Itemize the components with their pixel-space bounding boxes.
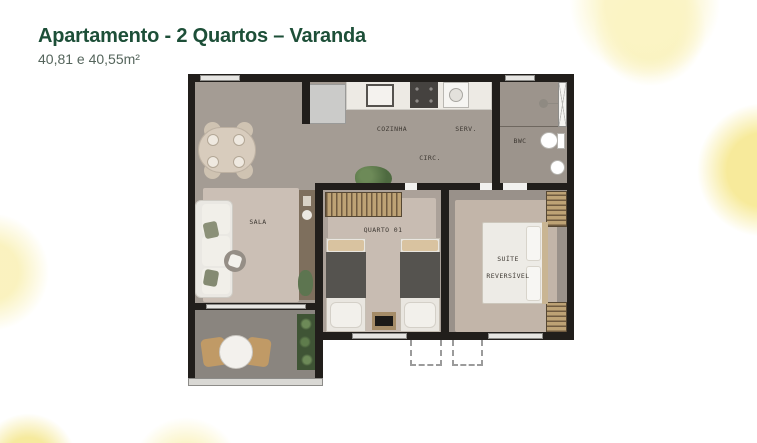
wall-left	[188, 74, 195, 386]
window-suite	[488, 333, 543, 339]
label-quarto01: QUARTO 01	[333, 226, 433, 235]
door-bwc	[503, 183, 527, 190]
bed1-foot-cushion	[330, 302, 362, 328]
bwc-divider	[500, 126, 567, 127]
sofa-pillow-green	[202, 221, 219, 240]
floor-plan: COZINHA SERV. CIRC. BWC SALA QUARTO 01 S…	[188, 74, 574, 388]
label-bwc: BWC	[500, 137, 540, 146]
wall-quarto-suite	[441, 190, 449, 340]
shower-arm	[547, 103, 558, 104]
cooktop	[410, 82, 438, 108]
wall-bwc-left	[492, 82, 500, 183]
door-quarto01	[405, 183, 417, 190]
toilet-bowl	[540, 132, 558, 149]
wall-entry-stub	[302, 82, 310, 124]
dining-plate	[233, 134, 245, 146]
quarto-tv	[375, 316, 393, 326]
label-cozinha: COZINHA	[357, 125, 427, 134]
bed2-blanket	[400, 252, 440, 298]
label-circulacao: CIRC.	[407, 154, 453, 163]
laundry-tank-basin	[449, 88, 463, 102]
balcony-planter	[297, 314, 315, 370]
bed1-blanket	[326, 252, 366, 298]
console-plant	[298, 270, 313, 296]
window-quarto	[352, 333, 407, 339]
bwc-sink	[550, 160, 565, 175]
bed2-foot-cushion	[404, 302, 436, 328]
sofa-pillow-green	[203, 269, 220, 287]
label-suite: SUÍTE REVERSÍVEL	[458, 246, 558, 290]
page-subtitle: 40,81 e 40,55m²	[38, 51, 366, 67]
dining-table	[198, 127, 256, 173]
dining-plate	[233, 156, 245, 168]
fridge	[308, 84, 346, 124]
toilet-tank	[557, 133, 565, 149]
wall-right	[567, 74, 574, 340]
bed1-pillow	[328, 240, 364, 251]
door-suite	[480, 183, 492, 190]
page-title: Apartamento - 2 Quartos – Varanda	[38, 25, 366, 48]
shower-glass	[558, 82, 567, 127]
console-decor	[302, 210, 312, 220]
kitchen-sink	[366, 84, 394, 107]
window-top-left	[200, 75, 240, 81]
dining-plate	[207, 156, 219, 168]
dashed-projection-box	[410, 340, 442, 366]
label-sala: SALA	[228, 218, 288, 227]
label-servico: SERV.	[443, 125, 489, 134]
label-suite-line2: REVERSÍVEL	[458, 272, 558, 281]
balcony-glass-rail	[188, 378, 323, 386]
wall-bedrooms-top	[315, 183, 574, 190]
label-suite-line1: SUÍTE	[458, 255, 558, 264]
window-top-bwc	[505, 75, 535, 81]
dining-plate	[207, 134, 219, 146]
balcony-table	[219, 335, 253, 369]
page-header: Apartamento - 2 Quartos – Varanda 40,81 …	[38, 25, 366, 67]
quarto-wardrobe	[325, 192, 402, 217]
wall-sala-quarto	[315, 183, 323, 386]
console-decor	[303, 196, 311, 206]
dashed-projection-box	[452, 340, 483, 366]
window-sala-balcony	[206, 304, 306, 309]
bed2-pillow	[402, 240, 438, 251]
suite-wardrobe-top	[546, 191, 567, 227]
